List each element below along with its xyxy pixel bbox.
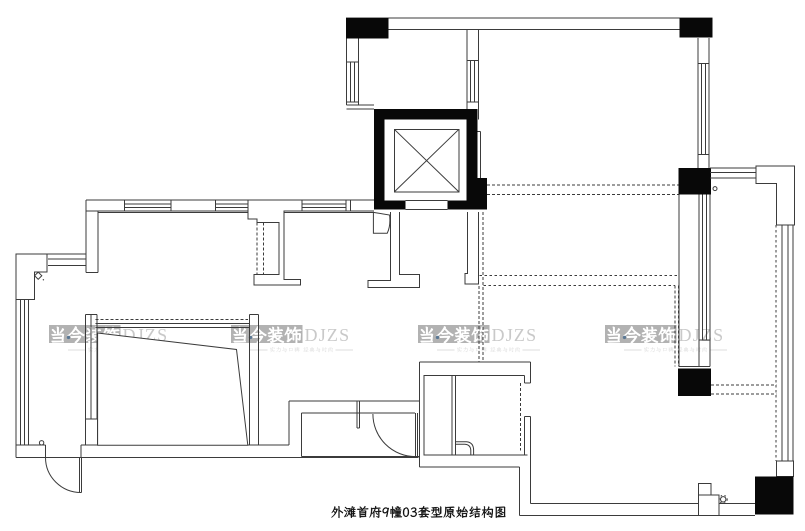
svg-text:DJZS: DJZS xyxy=(305,325,351,345)
svg-text:DJZS: DJZS xyxy=(679,325,725,345)
svg-text:DJZS: DJZS xyxy=(492,325,538,345)
